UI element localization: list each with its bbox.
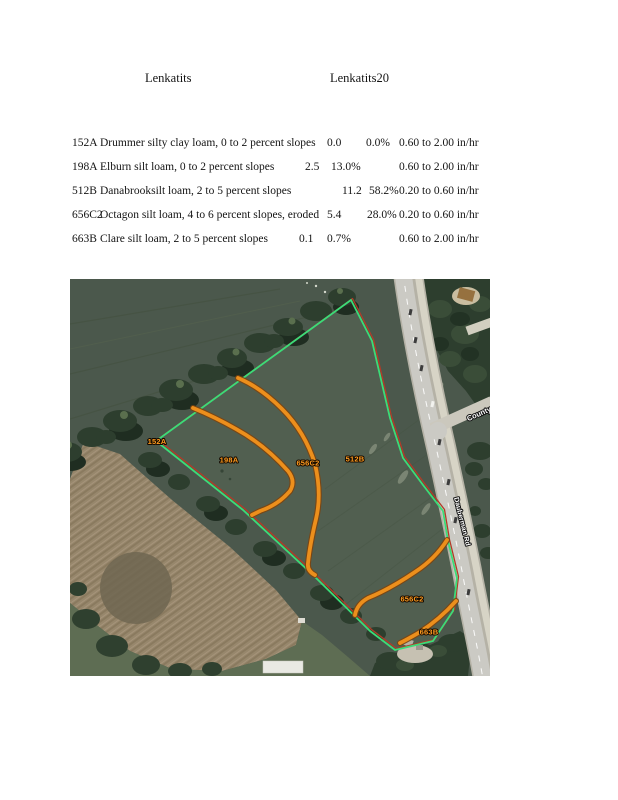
soil-code: 512B <box>72 185 97 197</box>
soil-acres: 5.4 <box>327 209 341 221</box>
soil-acres: 0.1 <box>299 233 313 245</box>
report-page: Lenkatits Lenkatits20 152A Drummer silty… <box>0 0 618 800</box>
report-title-right: Lenkatits20 <box>330 71 389 86</box>
soil-code: 198A <box>72 161 98 173</box>
soil-perm-rate: 0.20 to 0.60 in/hr <box>399 185 479 197</box>
soil-code: 152A <box>72 137 98 149</box>
soil-percent: 0.0% <box>366 137 390 149</box>
soil-percent: 58.2% <box>369 185 399 197</box>
report-title-left: Lenkatits <box>145 71 192 86</box>
soil-code: 656C2 <box>72 209 103 221</box>
table-row: 656C2 Octagon silt loam, 4 to 6 percent … <box>0 209 618 225</box>
soil-acres: 2.5 <box>305 161 319 173</box>
soil-description: Elburn silt loam, 0 to 2 percent slopes <box>100 161 274 173</box>
table-row: 152A Drummer silty clay loam, 0 to 2 per… <box>0 137 618 153</box>
soil-acres: 11.2 <box>342 185 362 197</box>
table-row: 512B Danabrooksilt loam, 2 to 5 percent … <box>0 185 618 201</box>
soil-perm-rate: 0.60 to 2.00 in/hr <box>399 137 479 149</box>
soil-perm-rate: 0.60 to 2.00 in/hr <box>399 233 479 245</box>
soil-acres: 0.0 <box>327 137 341 149</box>
soil-description: Drummer silty clay loam, 0 to 2 percent … <box>100 137 316 149</box>
map-label-512B: 512B <box>346 455 365 464</box>
map-label-656C2-lower: 656C2 <box>400 595 423 604</box>
corner-structure <box>452 287 480 305</box>
soil-description: Danabrooksilt loam, 2 to 5 percent slope… <box>100 185 291 197</box>
building-roof <box>298 618 305 623</box>
soil-code: 663B <box>72 233 97 245</box>
soil-perm-rate: 0.20 to 0.60 in/hr <box>399 209 479 221</box>
soil-percent: 13.0% <box>331 161 361 173</box>
soil-percent: 0.7% <box>327 233 351 245</box>
soil-perm-rate: 0.60 to 2.00 in/hr <box>399 161 479 173</box>
soil-description: Clare silt loam, 2 to 5 percent slopes <box>100 233 268 245</box>
map-label-656C2-upper: 656C2 <box>296 459 319 468</box>
map-label-152A: 152A <box>148 437 167 446</box>
map-label-198A: 198A <box>220 456 239 465</box>
map-label-663B: 663B <box>420 628 439 637</box>
table-row: 198A Elburn silt loam, 0 to 2 percent sl… <box>0 161 618 177</box>
soil-percent: 28.0% <box>367 209 397 221</box>
aerial-soil-map: 152A 198A 656C2 512B 656C2 663B County D… <box>70 279 490 676</box>
building-roof <box>263 661 303 673</box>
table-row: 663B Clare silt loam, 2 to 5 percent slo… <box>0 233 618 249</box>
soil-description: Octagon silt loam, 4 to 6 percent slopes… <box>100 209 319 221</box>
